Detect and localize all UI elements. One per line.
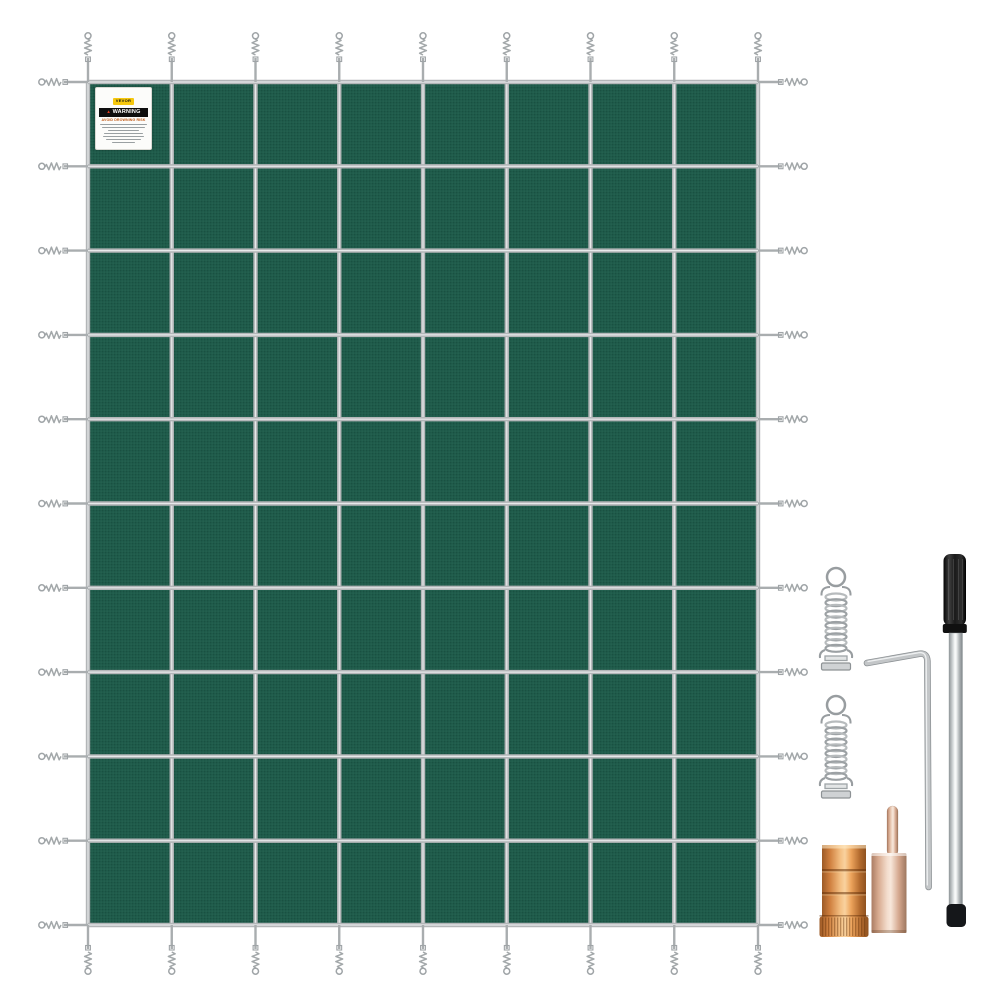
strap-end-spring xyxy=(39,79,88,86)
label-text-line xyxy=(103,136,144,137)
strap-end-spring xyxy=(755,925,762,974)
anchor-pin xyxy=(887,806,898,856)
strap-end-spring xyxy=(39,922,88,929)
strap-end-spring xyxy=(39,500,88,507)
strap-end-spring xyxy=(671,925,678,974)
brand-badge: VEVOR xyxy=(113,98,135,105)
strap-end-spring xyxy=(420,33,427,82)
strap-end-spring xyxy=(39,247,88,254)
strap-end-spring xyxy=(758,247,807,254)
strap-end-spring xyxy=(168,925,175,974)
brass-anchor xyxy=(820,845,869,937)
strap-end-spring xyxy=(758,922,807,929)
warning-title: WARNING xyxy=(113,110,141,116)
strap-end-spring xyxy=(39,584,88,591)
warning-label: VEVOR ▲ WARNING AVOID DROWNING RISK xyxy=(95,87,152,150)
strap-end-spring xyxy=(758,500,807,507)
strap-end-spring xyxy=(39,669,88,676)
warning-bar: ▲ WARNING xyxy=(99,108,148,117)
strap-end-spring xyxy=(758,416,807,423)
strap-end-spring xyxy=(755,33,762,82)
label-text-line xyxy=(102,127,145,128)
strap-end-spring xyxy=(168,33,175,82)
strap-end-spring xyxy=(252,33,259,82)
strap-end-spring xyxy=(336,925,343,974)
strap-end-spring xyxy=(503,925,510,974)
pool-safety-cover xyxy=(39,33,807,974)
brass-anchor-with-pin xyxy=(872,806,907,933)
installation-rod xyxy=(943,554,967,927)
pool-cover-graphic xyxy=(0,0,1000,1000)
strap-end-spring xyxy=(587,33,594,82)
strap-end-spring xyxy=(758,584,807,591)
strap-end-spring xyxy=(758,79,807,86)
warning-heading: AVOID DROWNING RISK xyxy=(99,119,148,123)
label-text-line xyxy=(100,124,146,125)
label-text-line xyxy=(108,130,138,131)
brand-badge-row: VEVOR xyxy=(99,90,148,106)
product-photo-scene: VEVOR ▲ WARNING AVOID DROWNING RISK xyxy=(0,0,1000,1000)
strap-end-spring xyxy=(39,837,88,844)
anchor-spring xyxy=(820,696,852,798)
label-text-line xyxy=(104,133,142,134)
strap-end-spring xyxy=(39,332,88,339)
strap-end-spring xyxy=(420,925,427,974)
strap-end-spring xyxy=(758,753,807,760)
warning-triangle-icon: ▲ xyxy=(106,110,111,115)
label-text-line xyxy=(106,139,140,140)
strap-end-spring xyxy=(85,33,92,82)
strap-end-spring xyxy=(39,416,88,423)
strap-end-spring xyxy=(503,33,510,82)
strap-end-spring xyxy=(587,925,594,974)
hardware-kit xyxy=(820,554,967,937)
strap-end-spring xyxy=(39,163,88,170)
rod-tip xyxy=(947,904,967,927)
strap-end-spring xyxy=(336,33,343,82)
strap-end-spring xyxy=(85,925,92,974)
strap-end-spring xyxy=(758,669,807,676)
strap-end-spring xyxy=(758,332,807,339)
rod-shaft xyxy=(949,633,963,905)
strap-end-spring xyxy=(671,33,678,82)
label-text-line xyxy=(112,142,135,143)
anchor-spring xyxy=(820,568,852,670)
strap-end-spring xyxy=(758,163,807,170)
strap-end-spring xyxy=(252,925,259,974)
strap-end-spring xyxy=(758,837,807,844)
strap-end-spring xyxy=(39,753,88,760)
